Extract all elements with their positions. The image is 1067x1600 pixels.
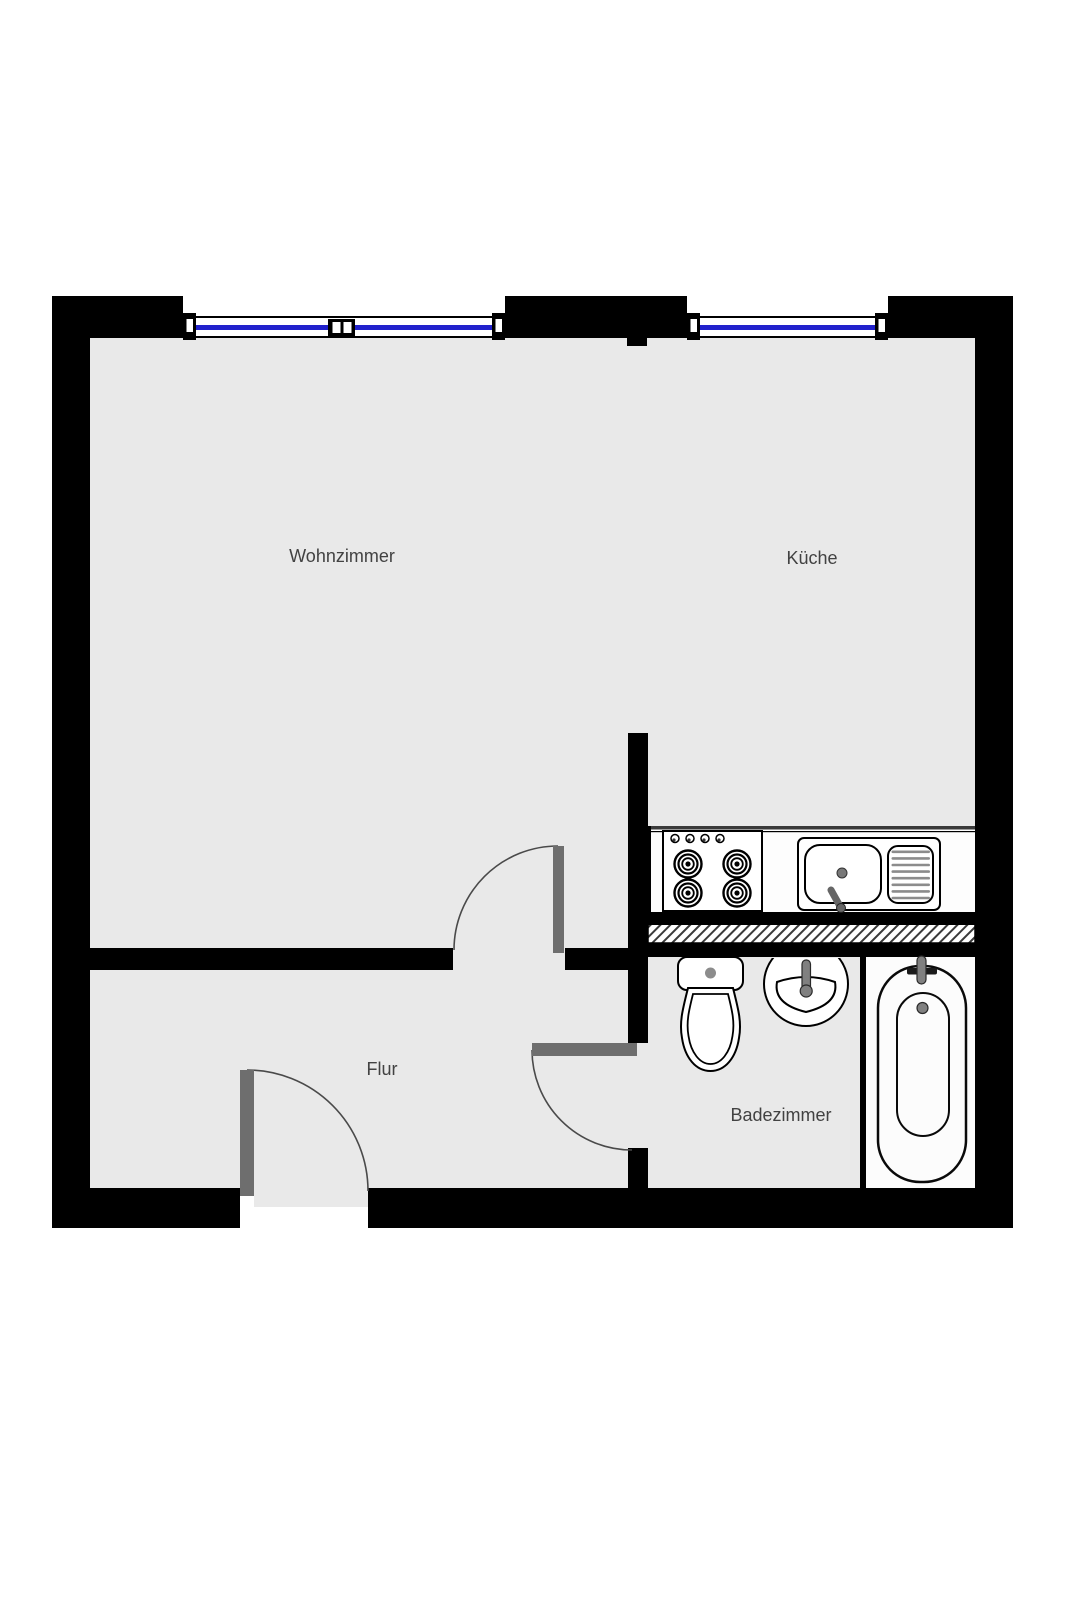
toilet-button: [705, 968, 716, 979]
window-frame-line: [183, 316, 505, 318]
wall-right: [975, 296, 1013, 1228]
room-label-wohnzimmer: Wohnzimmer: [289, 546, 395, 566]
wall-bottom-left: [52, 1188, 240, 1228]
counter-front-edge: [648, 826, 975, 830]
wall-bath-door-stub: [628, 1148, 648, 1190]
door-leaf: [532, 1043, 637, 1056]
window-frame-line: [183, 336, 505, 338]
bathtub-outer: [878, 966, 966, 1182]
stove-icon: [663, 831, 762, 911]
window-frame-line: [687, 316, 888, 318]
window-glass: [687, 325, 888, 330]
wall-hall-left: [90, 948, 453, 970]
toilet-icon: [678, 957, 743, 1071]
washbasin-drain: [800, 985, 812, 997]
sink-drain: [837, 868, 847, 878]
window-mullion-pane: [344, 322, 352, 333]
floorplan-canvas: Wohnzimmer Küche Flur Badezimmer: [0, 0, 1067, 1600]
bathtub-drain: [917, 1003, 928, 1014]
wall-top-left: [52, 296, 183, 338]
wall-left: [52, 296, 90, 1228]
window-end-cap-pane: [879, 319, 886, 332]
room-label-kueche: Küche: [786, 548, 837, 568]
wall-top-stub: [627, 338, 647, 346]
counter-side-edge: [648, 826, 651, 912]
bathtub-icon: [878, 956, 966, 1182]
wall-top-middle: [505, 296, 687, 338]
window-frame-line: [687, 336, 888, 338]
wall-top-right: [888, 296, 1013, 338]
floorplan-drawing: Wohnzimmer Küche Flur Badezimmer: [0, 0, 1067, 1600]
sink-drainboard: [888, 846, 933, 903]
room-label-flur: Flur: [367, 1059, 398, 1079]
wall-tub-divider: [860, 957, 866, 1188]
room-label-badezimmer: Badezimmer: [730, 1105, 831, 1125]
door-leaf: [553, 846, 564, 953]
entrance-threshold: [254, 1188, 368, 1207]
window-kueche: [687, 313, 888, 340]
window-end-cap-pane: [496, 319, 503, 332]
window-end-cap-pane: [691, 319, 698, 332]
kitchen-sink-icon: [798, 838, 940, 913]
wall-under-counter: [648, 912, 975, 925]
window-end-cap-pane: [187, 319, 194, 332]
bathtub-faucet: [917, 956, 926, 984]
toilet-bowl-inner: [688, 994, 734, 1064]
wall-bottom-right: [368, 1188, 1013, 1228]
window-wohnzimmer: [183, 313, 505, 340]
wall-interior-vertical: [628, 733, 648, 1043]
wall-bath-top: [648, 943, 975, 957]
sink-faucet-knob: [837, 904, 846, 913]
hatched-ledge: [648, 924, 975, 943]
door-leaf: [240, 1070, 254, 1196]
window-mullion-pane: [333, 322, 341, 333]
